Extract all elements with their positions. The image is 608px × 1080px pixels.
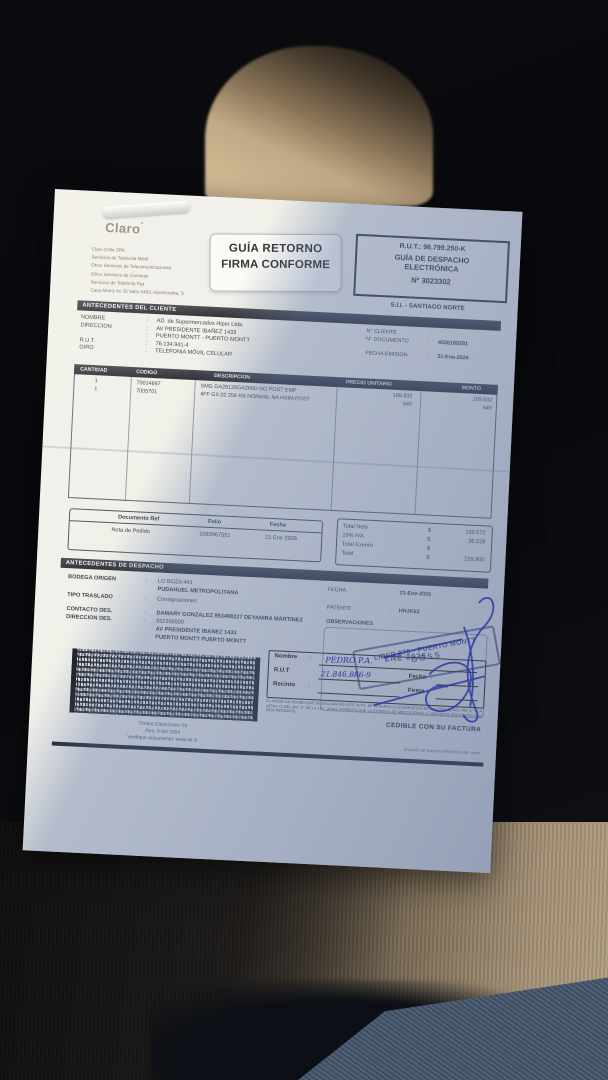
colon: : <box>428 339 430 345</box>
field-label: R.U.T <box>274 667 290 674</box>
colon: : <box>145 348 147 354</box>
col-header-monto: MONTO <box>462 383 482 394</box>
sticker-line1: GUÍA RETORNO <box>211 243 341 256</box>
ref-folio: 1083967551 <box>199 531 230 539</box>
fecha-label: Fecha <box>408 674 426 681</box>
footer-provider-text: Solución de Factura Electrónica de: www <box>288 741 480 755</box>
claro-logo: Claroˇ <box>105 220 144 237</box>
field-value: 932398500 <box>156 618 184 625</box>
field-label: PATENTE <box>327 605 385 614</box>
handwritten-rut: 21.846.886-9 <box>321 669 371 679</box>
colon: : <box>430 675 432 681</box>
field-value: HHJK63 <box>399 608 420 615</box>
column-divider <box>415 391 422 514</box>
field-value: 21-Ene-2026 <box>400 590 432 598</box>
field-value: 4026189281 <box>438 339 468 346</box>
handwritten-name: PEDRO P.A. <box>325 656 373 666</box>
rut-document-box: R.U.T.: 96.799.250-K GUÍA DE DESPACHO EL… <box>353 234 510 303</box>
colon: : <box>309 669 311 675</box>
field-label: FECHA <box>328 587 386 596</box>
colon: : <box>144 610 146 616</box>
dispatch-patente-row: PATENTE:HHJK63 <box>327 605 477 620</box>
col-header-descripcion: DESCRIPCION <box>214 371 250 383</box>
colon: : <box>145 596 147 602</box>
dispatch-fecha-row: FECHA:21-Ene-2026 <box>328 587 478 602</box>
field-label: TIPO TRASLADO <box>67 592 139 602</box>
antenna-icon: ˇ <box>140 221 144 230</box>
sticker-line2: FIRMA CONFORME <box>211 259 341 272</box>
column-divider <box>189 380 196 503</box>
ref-header-documento: Documento Ref <box>118 514 160 522</box>
colon: : <box>390 590 392 596</box>
recinto-line <box>318 683 400 697</box>
firma-line <box>436 689 478 701</box>
total-label: Total Neto <box>343 523 368 530</box>
total-label: Total <box>341 550 353 557</box>
cell-codigo: 70014897 <box>136 380 160 387</box>
colon: : <box>145 340 147 346</box>
field-label: Recinto <box>273 681 295 688</box>
total-value: 190.672 <box>465 529 486 536</box>
colon: : <box>430 689 432 695</box>
totals-box: Total Neto$190.672 19% IVA$36.228 Total … <box>335 518 493 573</box>
reference-box: Documento Ref Folio Fecha Nota de Pedido… <box>67 508 323 562</box>
ref-header-folio: Folio <box>208 519 222 526</box>
colon: : <box>146 578 148 584</box>
field-value: Consignaciones <box>157 596 197 604</box>
field-value: LO BOZA 441 <box>158 579 193 587</box>
cell-monto: 189.832 <box>473 397 493 404</box>
pen <box>102 200 191 218</box>
fecha-line <box>436 675 478 687</box>
colon: : <box>389 608 391 614</box>
col-header-precio: PRECIO UNITARIO <box>346 377 392 389</box>
cell-monto: 640 <box>483 405 492 411</box>
pdf417-barcode <box>69 648 260 721</box>
return-stamp-sticker: GUÍA RETORNO FIRMA CONFORME <box>210 234 342 293</box>
document-type: GUÍA DE DESPACHO ELECTRÓNICA <box>356 252 507 276</box>
cell-precio: 640 <box>403 401 412 407</box>
field-value: 21-Ene-2026 <box>437 354 469 362</box>
colon: : <box>146 333 148 339</box>
colon: : <box>146 325 148 331</box>
colon: : <box>427 353 429 359</box>
currency-sign: $ <box>426 555 429 561</box>
column-divider <box>125 377 132 500</box>
items-table: CANTIDAD CODIGO DESCRIPCION PRECIO UNITA… <box>68 364 498 519</box>
total-label: Total Exento <box>342 541 373 548</box>
column-divider <box>331 387 338 510</box>
claro-logo-text: Claro <box>105 220 141 237</box>
ref-header-fecha: Fecha <box>270 522 286 529</box>
firma-label: Firma <box>408 688 425 695</box>
cell-cantidad: 1 <box>95 378 98 384</box>
colon: : <box>147 318 149 324</box>
colon: : <box>309 655 311 661</box>
col-header-cantidad: CANTIDAD <box>80 364 108 375</box>
photo-scene: Claroˇ Claro Chile SPA Servicios de Tele… <box>0 0 608 1080</box>
dispatch-guide-document: Claroˇ Claro Chile SPA Servicios de Tele… <box>23 189 523 873</box>
currency-sign: $ <box>427 537 430 543</box>
currency-sign: $ <box>427 546 430 552</box>
reference-header: Documento Ref Folio Fecha <box>70 509 322 533</box>
field-label: FECHA EMISION <box>365 350 423 359</box>
colon: : <box>428 331 430 337</box>
page-bottom-rule <box>52 742 484 767</box>
colon: : <box>144 618 146 624</box>
cell-codigo: 7005701 <box>136 388 157 395</box>
company-info-lines: Claro Chile SPA Servicios de Telefonía M… <box>90 246 185 298</box>
total-value: 226.900 <box>464 556 485 563</box>
ref-doc-type: Nota de Pedido <box>111 527 150 535</box>
cell-cantidad: 1 <box>94 386 97 392</box>
emission-date-row: FECHA EMISION:21-Ene-2026 <box>365 350 515 365</box>
col-header-codigo: CODIGO <box>136 367 158 378</box>
colon: : <box>308 683 310 689</box>
total-value: 36.228 <box>468 539 485 546</box>
field-label: Nombre <box>274 653 297 660</box>
total-label: 19% IVA <box>342 532 364 539</box>
car-seat <box>205 46 433 206</box>
document-number: Nº 3023302 <box>356 273 506 289</box>
currency-sign: $ <box>428 528 431 534</box>
ref-fecha: 21 Ene 2026 <box>265 535 297 543</box>
cell-precio: 189.832 <box>393 393 413 400</box>
